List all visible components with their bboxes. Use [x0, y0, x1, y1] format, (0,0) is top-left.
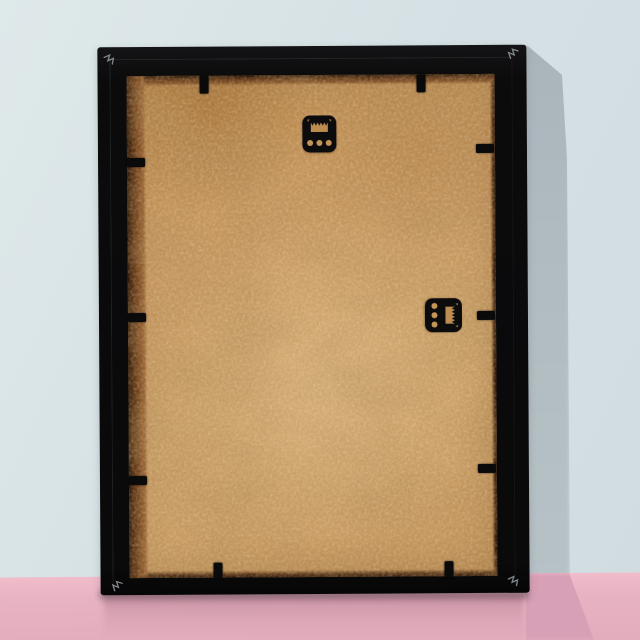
- frame-shadow-on-wall: [524, 44, 570, 580]
- frame-floor-reflection: [104, 597, 524, 639]
- flexi-tab-top: [200, 76, 209, 94]
- flexi-tab-right: [478, 464, 496, 473]
- flexi-tab-right: [477, 311, 495, 320]
- picture-frame-back: [97, 45, 529, 596]
- flexi-tab-top: [417, 74, 426, 92]
- flexi-tab-left: [129, 476, 147, 485]
- sawtooth-hanger-side: [424, 298, 462, 333]
- flexi-tab-bottom: [213, 563, 222, 579]
- flexi-tab-right: [476, 144, 494, 153]
- corner-staple: [505, 572, 523, 589]
- flexi-tab-bottom: [444, 561, 453, 577]
- sawtooth-hanger-top: [302, 115, 337, 153]
- flexi-tab-left: [127, 158, 145, 167]
- product-photo: [0, 0, 640, 640]
- flexi-tab-left: [128, 313, 146, 322]
